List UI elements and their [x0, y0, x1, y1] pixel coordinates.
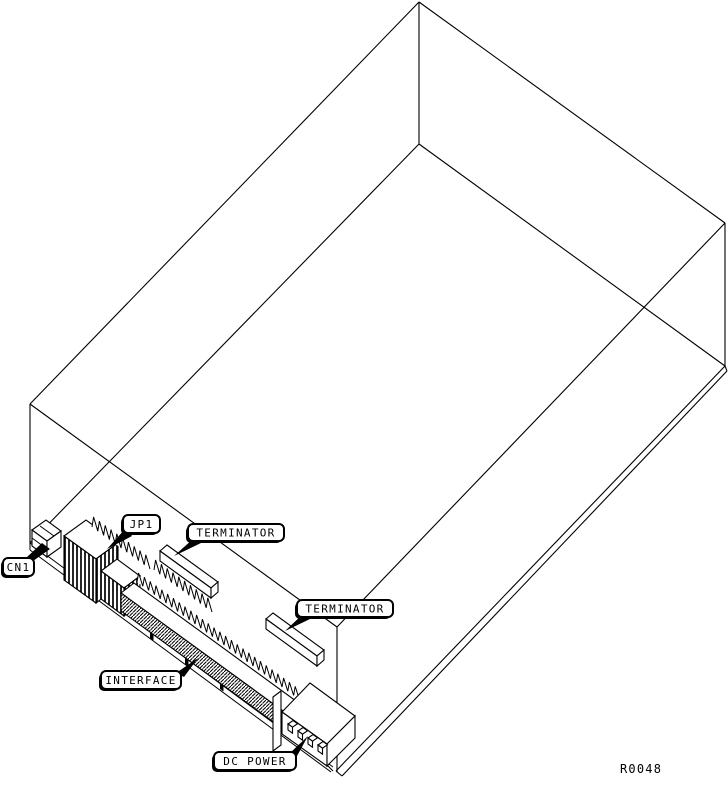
enclosure-outline — [30, 2, 727, 776]
callout-terminator-lower: TERMINATOR — [295, 600, 393, 619]
callout-dc-power-label: DC POWER — [223, 755, 286, 768]
callout-jp1: JP1 — [121, 515, 160, 535]
callout-terminator-upper: TERMINATOR — [186, 524, 284, 543]
callout-dc-power: DC POWER — [212, 752, 296, 772]
callout-interface-label: INTERFACE — [105, 674, 176, 687]
callout-cn1: CN1 — [1, 558, 34, 578]
base-plate-edge — [324, 366, 727, 776]
callout-interface: INTERFACE — [99, 671, 181, 691]
callout-terminator-upper-label: TERMINATOR — [196, 527, 275, 540]
callout-cn1-label: CN1 — [7, 561, 31, 574]
callout-jp1-label: JP1 — [130, 518, 154, 531]
callout-terminator-lower-label: TERMINATOR — [305, 603, 384, 616]
terminator-lower-pack — [266, 613, 324, 666]
terminator-upper-pack — [160, 545, 218, 598]
drive-isometric-illustration: CN1 JP1 TERMINATOR TERMINATOR INTERFACE … — [0, 0, 728, 785]
figure-reference: R0048 — [620, 762, 662, 776]
